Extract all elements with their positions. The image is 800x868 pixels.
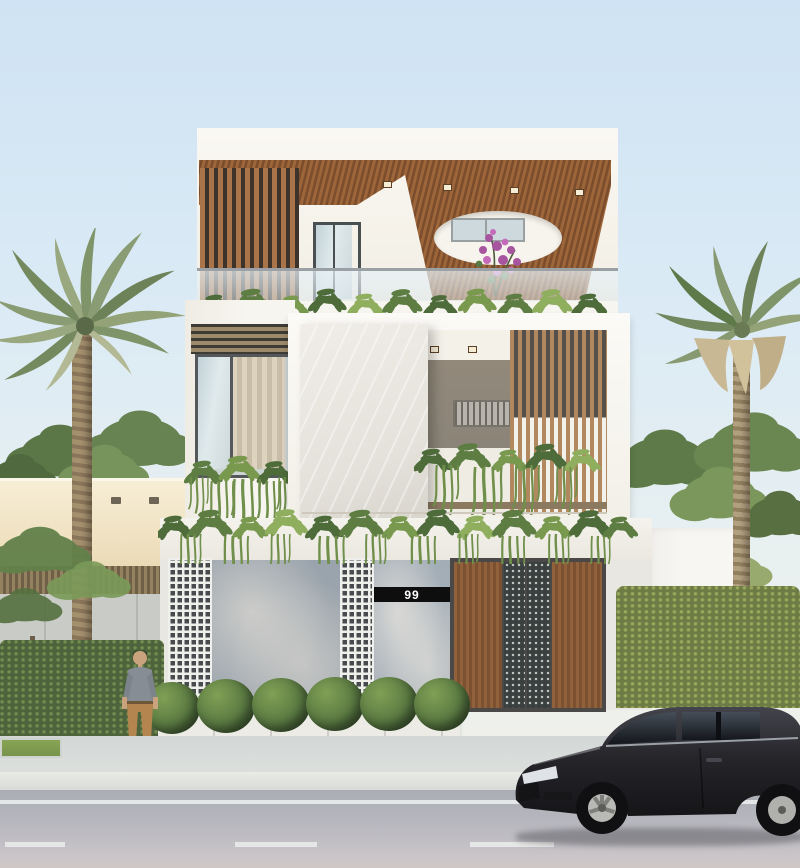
car-intake xyxy=(544,792,572,800)
downlight xyxy=(430,346,439,353)
car-front-wheel xyxy=(576,782,628,834)
car-sedan xyxy=(510,696,800,848)
wing-window-curtain xyxy=(232,357,285,469)
wing-window-glass xyxy=(198,357,232,469)
downlight xyxy=(575,189,584,196)
gate-metal-panel-left xyxy=(504,562,525,708)
house-number: 99 xyxy=(404,588,419,602)
downlight xyxy=(443,184,452,191)
man-pants xyxy=(127,704,153,740)
car-b-pillar xyxy=(716,712,721,740)
gate-metal-panel-right xyxy=(527,562,550,708)
marble-panel xyxy=(300,324,428,518)
road-dash xyxy=(235,842,317,847)
grass-square xyxy=(0,738,62,758)
planter-plants-ground xyxy=(158,498,638,564)
man-standing xyxy=(112,646,168,750)
entrance-gate xyxy=(450,558,606,712)
man-belt xyxy=(127,701,153,704)
bush xyxy=(306,677,364,731)
scene-house-render: 99 xyxy=(0,0,800,868)
palm-dried-skirt xyxy=(694,338,732,392)
bush xyxy=(197,679,255,733)
downlight xyxy=(468,346,477,353)
palm-crown-right xyxy=(628,238,800,448)
house-number-plaque: 99 xyxy=(374,587,450,602)
bush xyxy=(360,677,418,731)
wing-window-divider xyxy=(230,357,233,469)
downlight xyxy=(383,181,392,188)
hedge-right xyxy=(616,586,800,708)
bush xyxy=(252,678,310,732)
pergola-canopy xyxy=(191,324,291,354)
road-dash xyxy=(5,842,65,847)
bush xyxy=(414,678,470,731)
interior-slit-window xyxy=(453,400,514,427)
downlight xyxy=(510,187,519,194)
car-door-handle xyxy=(706,758,722,762)
man-head xyxy=(133,651,147,665)
gate-wood-panel-right xyxy=(552,562,602,708)
street-tree-canopy xyxy=(0,492,140,662)
